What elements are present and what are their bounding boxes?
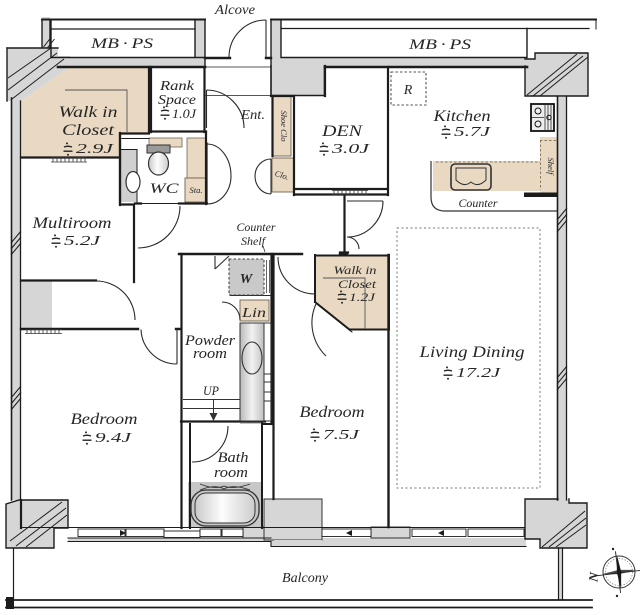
svg-text:Living Dining: Living Dining (418, 344, 524, 361)
svg-text:5.7J: 5.7J (454, 125, 491, 140)
svg-text:5.2J: 5.2J (64, 234, 101, 249)
svg-text:1.0J: 1.0J (172, 107, 198, 121)
svg-text:Bedroom: Bedroom (300, 404, 365, 421)
svg-text:Ent.: Ent. (240, 108, 265, 123)
svg-text:Multiroom: Multiroom (31, 215, 111, 232)
svg-text:Space: Space (158, 92, 196, 107)
svg-text:R: R (403, 83, 413, 98)
svg-text:Shelf: Shelf (546, 158, 556, 177)
svg-text:Balcony: Balcony (282, 571, 329, 586)
svg-text:DEN: DEN (321, 123, 364, 140)
svg-text:Sta.: Sta. (190, 185, 203, 195)
svg-text:MB · PS: MB · PS (90, 36, 154, 52)
svg-text:7.5J: 7.5J (323, 428, 360, 443)
svg-text:W: W (240, 272, 254, 287)
svg-text:3.0J: 3.0J (330, 142, 370, 157)
svg-text:Rank: Rank (159, 78, 195, 93)
svg-text:2.9J: 2.9J (76, 142, 114, 157)
svg-text:Alcove: Alcove (214, 3, 255, 18)
svg-text:Bath: Bath (218, 450, 249, 466)
svg-text:room: room (193, 346, 227, 362)
svg-text:Lin: Lin (241, 305, 267, 320)
svg-text:9.4J: 9.4J (95, 431, 132, 446)
svg-text:17.2J: 17.2J (456, 366, 501, 381)
svg-text:Counter: Counter (459, 196, 498, 210)
svg-text:Closet: Closet (62, 122, 115, 139)
svg-text:Walk in: Walk in (59, 104, 118, 121)
svg-text:Walk in: Walk in (334, 263, 377, 277)
svg-text:WC: WC (150, 181, 180, 197)
svg-text:Closet: Closet (338, 277, 377, 291)
svg-text:1.2J: 1.2J (349, 290, 376, 304)
svg-text:MB · PS: MB · PS (408, 37, 472, 53)
svg-text:UP: UP (203, 384, 219, 398)
svg-text:Counter: Counter (237, 222, 277, 234)
svg-text:Kitchen: Kitchen (432, 108, 490, 125)
svg-text:room: room (214, 465, 248, 481)
svg-text:Shoe Clo: Shoe Clo (279, 111, 289, 142)
svg-text:Bedroom: Bedroom (71, 411, 138, 428)
